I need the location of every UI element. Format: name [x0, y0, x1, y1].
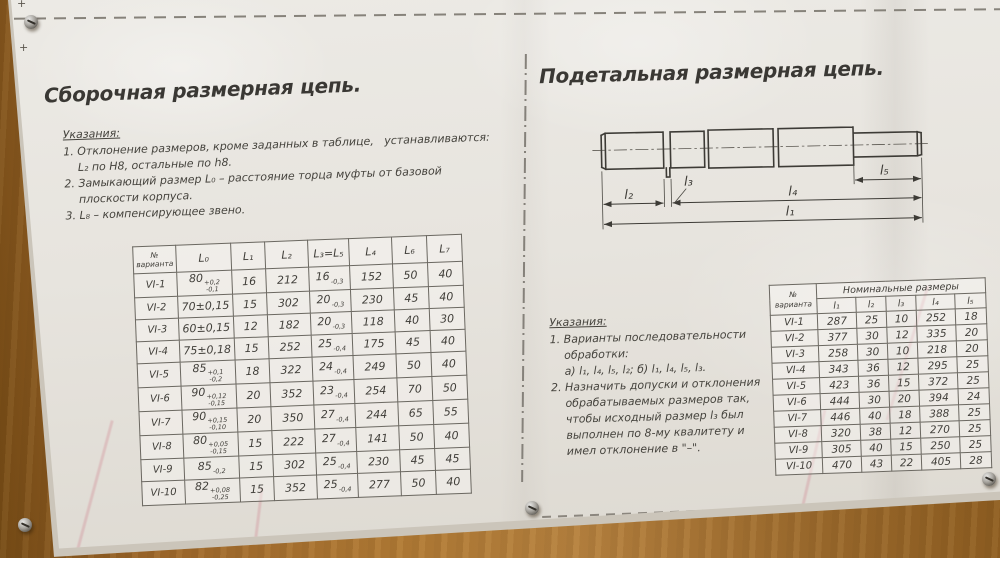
table-cell: 50 [396, 352, 432, 377]
table-cell: 25 [959, 404, 991, 421]
dim-line-l2 [604, 203, 664, 204]
table-cell: 27-0,4 [315, 427, 357, 452]
detail-table-body: VI-1287251025218VI-2377301233520VI-32583… [770, 308, 991, 475]
table-cell: 25 [960, 436, 992, 453]
table-cell: 85+0,1-0,2 [180, 360, 236, 386]
leader-l3 [674, 189, 686, 203]
table-cell: 40 [861, 439, 892, 456]
table-cell: 302 [267, 291, 311, 315]
register-mark: + [17, 0, 26, 10]
table-cell: 175 [352, 332, 396, 356]
table-cell: 20 [956, 324, 988, 341]
table-cell: 25 [957, 356, 989, 373]
table-cell: 75±0,18 [179, 338, 235, 362]
screw-top-left [24, 15, 38, 29]
screw-bottom-middle [525, 501, 539, 515]
table-cell: 40 [427, 261, 463, 286]
table-cell: 258 [818, 344, 858, 361]
table-cell: 335 [917, 325, 957, 342]
table-cell: 15 [891, 438, 922, 455]
label-l4: l₄ [788, 184, 798, 199]
table-cell: 50 [432, 375, 468, 400]
table-cell: 352 [270, 381, 314, 407]
column-header: L₂ [265, 240, 309, 269]
fold-line-divider [521, 54, 527, 482]
table-cell: 16-0,3 [309, 266, 351, 291]
corner-header: № варианта [769, 284, 817, 316]
column-header: № варианта [133, 245, 177, 274]
table-cell: 22 [891, 454, 922, 471]
table-cell: 38 [860, 423, 891, 440]
table-cell: 25 [957, 372, 989, 389]
table-cell: 28 [960, 452, 992, 469]
label-l5: l₅ [880, 163, 889, 178]
table-cell: 446 [821, 408, 861, 425]
table-cell: 23-0,4 [313, 379, 355, 404]
table-cell: VI-3 [135, 318, 179, 342]
table-cell: 50 [400, 470, 436, 495]
column-header: l₃ [886, 295, 917, 311]
register-mark: + [19, 41, 28, 54]
table-cell: 244 [355, 402, 399, 428]
table-cell: VI-8 [774, 426, 822, 444]
column-header: l₁ [817, 297, 856, 313]
table-cell: 12 [888, 358, 919, 375]
table-cell: 352 [274, 475, 318, 501]
assembly-dimension-table: № вариантаL₀L₁L₂L₃=L₅L₄L₆L₇ VI-180+0,2-0… [132, 234, 472, 506]
table-cell: 43 [861, 455, 892, 472]
table-cell: 302 [273, 453, 317, 477]
table-cell: 305 [822, 440, 862, 457]
column-header: l₅ [955, 293, 987, 309]
table-cell: 55 [433, 399, 469, 424]
table-cell: VI-6 [138, 386, 182, 412]
table-cell: 141 [356, 426, 400, 452]
table-cell: 372 [918, 373, 958, 390]
table-cell: 20-0,3 [310, 312, 352, 336]
table-cell: 322 [269, 357, 313, 383]
screw-bottom-right [982, 472, 996, 486]
table-cell: 15 [888, 374, 919, 391]
right-notes: Указания: 1. Варианты последовательности… [549, 309, 788, 461]
table-cell: 40 [430, 329, 466, 352]
table-cell: 25-0,4 [311, 333, 353, 357]
column-header: l₄ [916, 294, 955, 310]
table-cell: 50 [393, 263, 429, 288]
table-cell: 295 [918, 357, 958, 374]
table-cell: 85-0,2 [184, 456, 240, 480]
table-cell: 25 [959, 420, 991, 437]
assembly-table-body: VI-180+0,2-0,11621216-0,31525040VI-270±0… [134, 261, 472, 505]
shaft-outline [601, 126, 922, 179]
table-cell: 230 [350, 288, 394, 312]
table-cell: 40 [428, 285, 464, 308]
column-header: L₀ [176, 243, 232, 272]
table-cell: 30 [859, 391, 890, 408]
table-cell: 377 [818, 328, 858, 345]
table-cell: 405 [921, 453, 961, 470]
shaft-drawing: l₂ l₃ l₄ l₅ l₁ [591, 111, 934, 242]
table-cell: 118 [351, 310, 395, 334]
table-cell: 25-0,4 [317, 473, 359, 498]
table-cell: VI-5 [773, 378, 821, 396]
table-cell: 25-0,4 [316, 451, 358, 475]
table-cell: 90+0,12-0,15 [181, 384, 237, 410]
table-cell: 10 [886, 310, 917, 327]
table-cell: 350 [271, 405, 315, 431]
table-cell: 12 [233, 315, 268, 338]
table-cell: 18 [955, 308, 987, 325]
label-l3: l₃ [684, 174, 693, 189]
table-cell: VI-2 [135, 296, 179, 320]
table-cell: 15 [233, 293, 268, 316]
table-cell: 45 [400, 448, 436, 471]
right-notes-list: 1. Варианты последовательности обработки… [549, 326, 787, 461]
table-cell: 252 [268, 335, 312, 359]
table-cell: 212 [266, 267, 310, 293]
table-cell: 30 [857, 327, 888, 344]
table-cell: 15 [240, 476, 275, 501]
table-cell: 40 [394, 309, 430, 332]
table-cell: 18 [235, 359, 270, 384]
table-cell: 36 [858, 375, 889, 392]
shaft-drawing-svg: l₂ l₃ l₄ l₅ l₁ [591, 111, 934, 242]
table-cell: 277 [358, 471, 402, 497]
table-cell: VI-1 [134, 272, 178, 298]
left-notes: Указания: 1. Отклонение размеров, кроме … [62, 113, 495, 225]
table-cell: 15 [239, 454, 274, 477]
table-cell: VI-4 [772, 362, 820, 380]
table-cell: 27-0,4 [314, 403, 356, 428]
column-header: L₃=L₅ [308, 239, 350, 268]
right-section-title: Подетальная размерная цепь. [539, 56, 884, 88]
table-cell: 423 [820, 376, 860, 393]
table-cell: VI-10 [775, 458, 823, 476]
table-cell: 70±0,15 [178, 294, 234, 318]
table-cell: VI-9 [141, 458, 185, 482]
assembly-table: № вариантаL₀L₁L₂L₃=L₅L₄L₆L₇ VI-180+0,2-0… [132, 234, 472, 506]
table-cell: 10 [887, 342, 918, 359]
table-cell: 470 [822, 456, 862, 473]
table-cell: 60±0,15 [178, 316, 234, 340]
table-cell: 70 [397, 376, 433, 401]
table-cell: 40 [431, 351, 467, 376]
table-cell: 270 [920, 421, 960, 438]
dim-line-l1 [604, 218, 922, 225]
table-cell: 50 [399, 424, 435, 449]
table-cell: 80+0,2-0,1 [177, 270, 233, 296]
table-cell: 20 [237, 407, 272, 432]
table-cell: 320 [821, 424, 861, 441]
label-l2: l₂ [624, 188, 633, 203]
table-cell: 40 [434, 423, 470, 448]
table-cell: 12 [887, 326, 918, 343]
centerline [592, 143, 930, 150]
dim-line-l5 [855, 179, 921, 180]
table-cell: VI-7 [139, 410, 183, 436]
column-header: L₇ [426, 234, 462, 262]
table-cell: VI-4 [136, 340, 180, 364]
table-cell: 15 [238, 430, 273, 455]
table-cell: 222 [272, 429, 316, 455]
column-header: L₁ [231, 242, 266, 270]
table-cell: VI-7 [774, 410, 822, 428]
table-cell: VI-3 [771, 346, 819, 364]
crease-line [73, 420, 113, 561]
table-cell: 30 [429, 307, 465, 330]
table-cell: 20 [889, 390, 920, 407]
left-notes-list: 1. Отклонение размеров, кроме заданных в… [63, 130, 496, 225]
table-cell: 20 [236, 383, 271, 408]
detail-dimension-table: № вариантаНоминальные размерыl₁l₂l₃l₄l₅ … [769, 277, 993, 475]
table-cell: 20-0,3 [309, 290, 351, 314]
table-cell: 45 [393, 287, 429, 310]
table-cell: 40 [860, 407, 891, 424]
table-cell: 218 [917, 341, 957, 358]
left-section-title: Сборочная размерная цепь. [44, 72, 362, 107]
table-cell: 12 [890, 422, 921, 439]
column-header: l₂ [856, 296, 887, 312]
table-cell: VI-10 [142, 480, 186, 506]
table-cell: VI-9 [775, 442, 823, 460]
table-cell: 287 [817, 312, 857, 329]
table-cell: 24-0,4 [312, 355, 354, 380]
table-cell: 152 [350, 264, 394, 290]
table-cell: 65 [398, 400, 434, 425]
table-cell: 25 [856, 311, 887, 328]
table-cell: VI-8 [140, 434, 184, 460]
table-cell: 15 [234, 337, 269, 360]
table-cell: 30 [857, 343, 888, 360]
table-cell: 20 [956, 340, 988, 357]
table-cell: 394 [919, 389, 959, 406]
table-cell: VI-2 [771, 330, 819, 348]
table-cell: 444 [820, 392, 860, 409]
table-cell: VI-6 [773, 394, 821, 412]
column-header: L₄ [348, 237, 392, 266]
table-cell: 182 [267, 313, 311, 337]
table-cell: 90+0,15-0,10 [182, 408, 238, 434]
column-header: L₆ [391, 236, 427, 264]
label-l1: l₁ [786, 204, 795, 219]
table-cell: 250 [921, 437, 961, 454]
table-cell: 40 [435, 469, 471, 494]
table-cell: 18 [890, 406, 921, 423]
table-cell: 388 [920, 405, 960, 422]
screw-bottom-left [18, 518, 32, 532]
table-cell: 343 [819, 360, 859, 377]
table-cell: 80+0,05-0,15 [183, 432, 239, 458]
table-cell: 230 [357, 449, 401, 473]
table-cell: 36 [858, 359, 889, 376]
table-cell: VI-1 [770, 314, 818, 332]
table-cell: VI-5 [137, 362, 181, 388]
cut-line-top [0, 8, 1000, 20]
table-cell: 24 [958, 388, 990, 405]
table-cell: 249 [353, 354, 397, 380]
table-cell: 252 [916, 309, 956, 326]
table-cell: 45 [435, 447, 471, 470]
table-cell: 16 [232, 269, 267, 294]
table-cell: 82+0,08-0,25 [185, 478, 241, 504]
table-cell: 45 [395, 330, 431, 353]
detail-table: № вариантаНоминальные размерыl₁l₂l₃l₄l₅ … [769, 277, 993, 475]
wooden-desk-background: Сборочная размерная цепь. Указания: 1. О… [0, 0, 1000, 558]
table-cell: 254 [354, 378, 398, 404]
assignment-sheet: Сборочная размерная цепь. Указания: 1. О… [0, 0, 1000, 558]
